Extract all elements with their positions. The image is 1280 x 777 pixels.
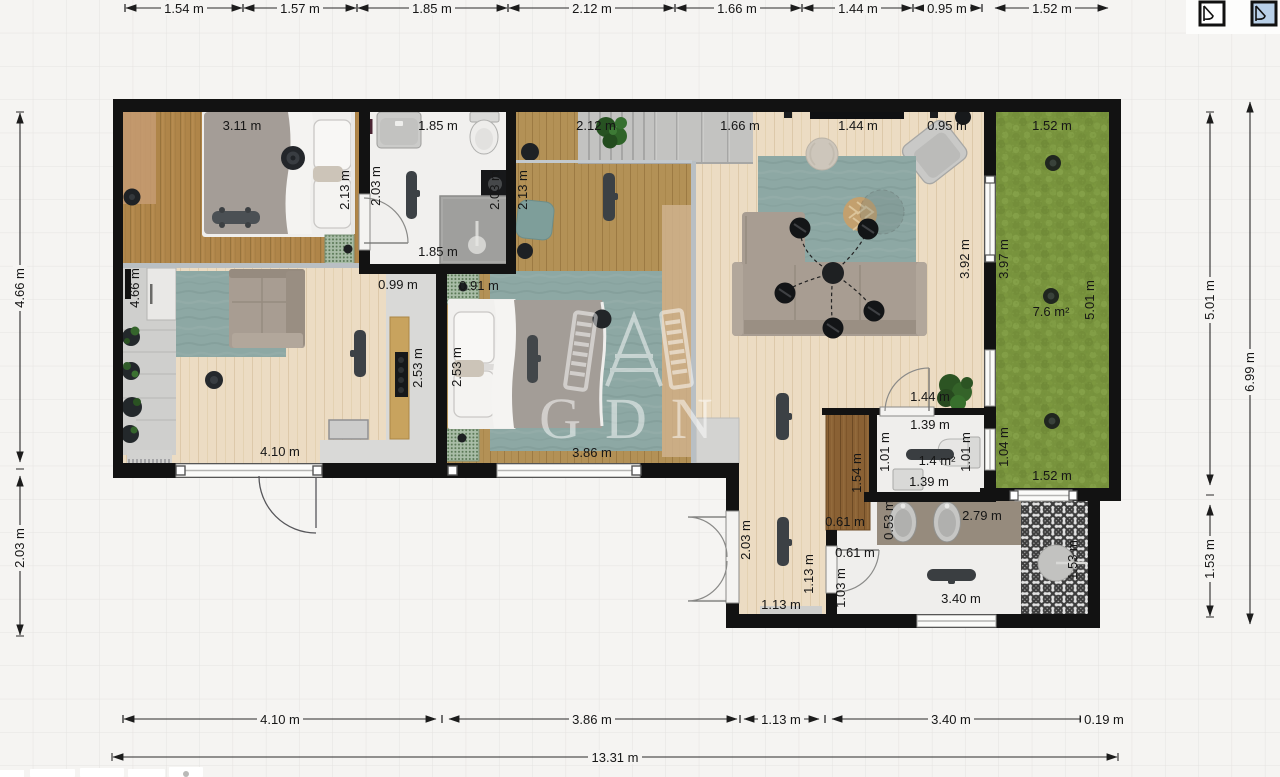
svg-text:2.03 m: 2.03 m: [12, 528, 27, 568]
svg-text:6.99 m: 6.99 m: [1242, 352, 1257, 392]
svg-text:2.13 m: 2.13 m: [515, 170, 530, 210]
svg-text:2.12 m: 2.12 m: [572, 1, 612, 16]
svg-text:4.66 m: 4.66 m: [127, 268, 142, 308]
svg-text:1.04 m: 1.04 m: [996, 427, 1011, 467]
svg-text:1.52 m: 1.52 m: [1032, 1, 1072, 16]
svg-text:1.53 m: 1.53 m: [1202, 539, 1217, 579]
svg-text:4.66 m: 4.66 m: [12, 268, 27, 308]
svg-text:1.54 m: 1.54 m: [164, 1, 204, 16]
svg-text:2.13 m: 2.13 m: [337, 170, 352, 210]
svg-text:0.91 m: 0.91 m: [459, 278, 499, 293]
svg-text:2.03 m: 2.03 m: [738, 520, 753, 560]
svg-text:1.01 m: 1.01 m: [877, 432, 892, 472]
svg-text:0.95 m: 0.95 m: [927, 1, 967, 16]
svg-text:3.97 m: 3.97 m: [996, 239, 1011, 279]
svg-text:1.66 m: 1.66 m: [720, 118, 760, 133]
svg-text:4.10 m: 4.10 m: [260, 444, 300, 459]
svg-text:2.12 m: 2.12 m: [576, 118, 616, 133]
svg-text:0.61 m: 0.61 m: [835, 545, 875, 560]
svg-text:3.86 m: 3.86 m: [572, 445, 612, 460]
svg-text:0.99 m: 0.99 m: [378, 277, 418, 292]
svg-text:1.44 m: 1.44 m: [838, 1, 878, 16]
svg-text:3.92 m: 3.92 m: [957, 239, 972, 279]
svg-text:1.13 m: 1.13 m: [761, 597, 801, 612]
svg-text:1.54 m: 1.54 m: [849, 453, 864, 493]
svg-text:1.4 m²: 1.4 m²: [919, 453, 957, 468]
svg-text:1.01 m: 1.01 m: [958, 432, 973, 472]
svg-text:1.85 m: 1.85 m: [412, 1, 452, 16]
svg-text:1.44 m: 1.44 m: [910, 389, 950, 404]
svg-text:5.01 m: 5.01 m: [1202, 280, 1217, 320]
svg-text:1.57 m: 1.57 m: [280, 1, 320, 16]
svg-text:5.01 m: 5.01 m: [1082, 280, 1097, 320]
svg-text:1.39 m: 1.39 m: [909, 474, 949, 489]
svg-text:1.03 m: 1.03 m: [833, 568, 848, 608]
svg-text:3.40 m: 3.40 m: [931, 712, 971, 727]
svg-text:1.44 m: 1.44 m: [838, 118, 878, 133]
svg-text:4.10 m: 4.10 m: [260, 712, 300, 727]
svg-text:0.53 m: 0.53 m: [881, 500, 896, 540]
svg-text:0.61 m: 0.61 m: [825, 514, 865, 529]
svg-text:1.13 m: 1.13 m: [761, 712, 801, 727]
svg-text:1.13 m: 1.13 m: [801, 554, 816, 594]
svg-text:1.85 m: 1.85 m: [418, 244, 458, 259]
svg-text:3.40 m: 3.40 m: [941, 591, 981, 606]
svg-text:1.39 m: 1.39 m: [910, 417, 950, 432]
svg-text:1.53 m: 1.53 m: [1065, 540, 1080, 580]
svg-text:2.03 m: 2.03 m: [368, 166, 383, 206]
svg-text:1.52 m: 1.52 m: [1032, 118, 1072, 133]
svg-text:7.6 m²: 7.6 m²: [1033, 304, 1071, 319]
svg-text:2.79 m: 2.79 m: [962, 508, 1002, 523]
svg-text:2.53 m: 2.53 m: [449, 347, 464, 387]
svg-text:3.86 m: 3.86 m: [572, 712, 612, 727]
svg-text:3.11 m: 3.11 m: [223, 118, 262, 133]
svg-text:1.52 m: 1.52 m: [1032, 468, 1072, 483]
svg-text:0.95 m: 0.95 m: [927, 118, 967, 133]
svg-text:1.66 m: 1.66 m: [717, 1, 757, 16]
svg-text:0.19 m: 0.19 m: [1084, 712, 1124, 727]
svg-text:GDN: GDN: [539, 386, 737, 451]
svg-text:2.53 m: 2.53 m: [410, 348, 425, 388]
svg-text:13.31 m: 13.31 m: [592, 750, 639, 765]
svg-text:1.85 m: 1.85 m: [418, 118, 458, 133]
svg-text:2.03 m: 2.03 m: [487, 170, 502, 210]
